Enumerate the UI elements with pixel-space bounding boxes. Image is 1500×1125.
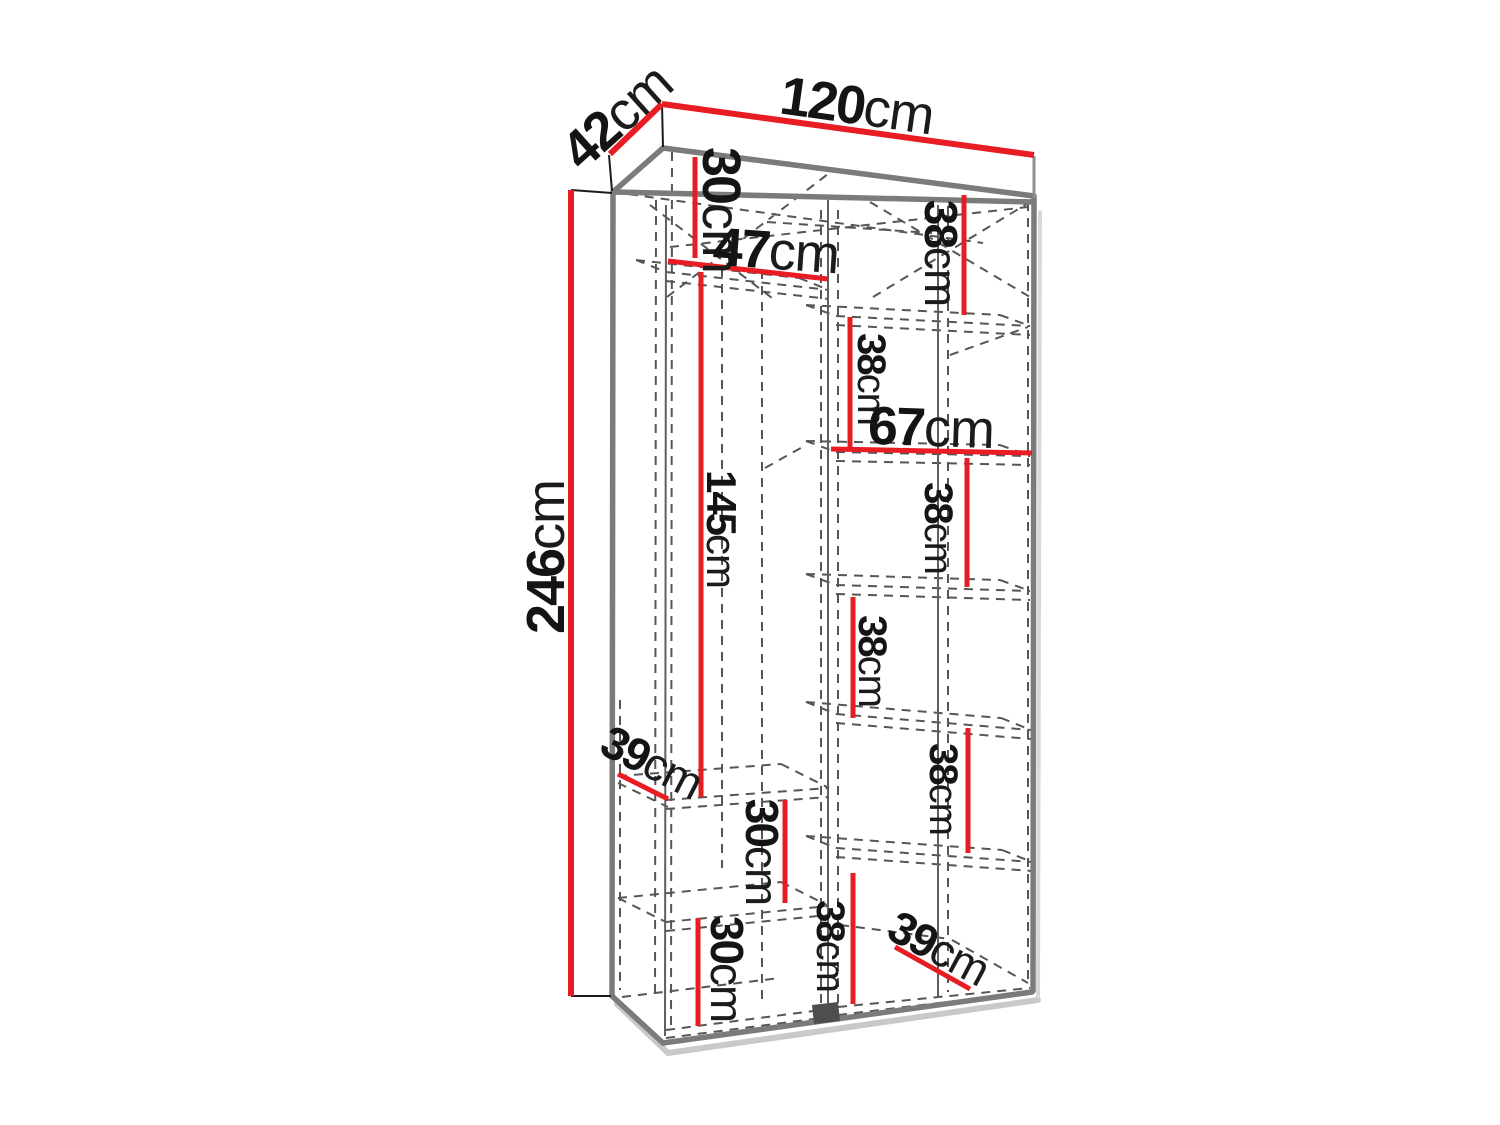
dim-unit: cm bbox=[923, 398, 995, 460]
dim-unit: cm bbox=[516, 480, 576, 550]
dim-label-right-38-c: 38cm bbox=[918, 482, 958, 574]
dim-label-right-38-e: 38cm bbox=[923, 743, 963, 835]
dim-label-left-39: 39cm bbox=[594, 717, 710, 806]
dim-value: 47 bbox=[711, 217, 771, 281]
dim-label-left-47: 47cm bbox=[711, 220, 841, 283]
dim-label-left-145: 145cm bbox=[700, 470, 742, 588]
dim-label-right-38-d: 38cm bbox=[852, 615, 892, 707]
dim-unit: cm bbox=[736, 846, 788, 905]
dim-value: 38 bbox=[850, 615, 894, 656]
dim-unit: cm bbox=[767, 221, 841, 286]
dim-unit: cm bbox=[698, 534, 745, 588]
dim-value: 38 bbox=[849, 333, 893, 374]
dim-unit: cm bbox=[860, 77, 938, 146]
dim-label-height-246: 246cm bbox=[519, 480, 573, 634]
dim-unit: cm bbox=[850, 656, 894, 707]
dim-value: 30 bbox=[701, 916, 753, 963]
dim-label-bottom-left-30: 30cm bbox=[704, 916, 750, 1023]
dim-value: 145 bbox=[698, 470, 745, 534]
dim-value: 38 bbox=[915, 200, 967, 247]
dim-unit: cm bbox=[916, 523, 960, 574]
dim-label-bottom-38: 38cm bbox=[810, 900, 850, 992]
dim-value: 120 bbox=[777, 66, 869, 137]
dim-label-width-120: 120cm bbox=[777, 69, 937, 144]
dim-label-depth-42: 42cm bbox=[552, 55, 682, 179]
wardrobe-dimension-diagram: 42cm120cm30cm47cm38cm38cm67cm145cm38cm38… bbox=[0, 0, 1500, 1125]
dim-unit: cm bbox=[701, 963, 753, 1022]
dim-label-left-mid-30: 30cm bbox=[739, 799, 785, 906]
dim-unit: cm bbox=[915, 247, 967, 306]
dim-label-bottom-right-39: 39cm bbox=[881, 903, 997, 994]
dimension-labels: 42cm120cm30cm47cm38cm38cm67cm145cm38cm38… bbox=[0, 0, 1500, 1125]
dim-unit: cm bbox=[808, 941, 852, 992]
dim-value: 30 bbox=[691, 147, 751, 203]
dim-value: 30 bbox=[736, 799, 788, 846]
dim-value: 246 bbox=[516, 550, 576, 634]
dim-label-right-67: 67cm bbox=[867, 399, 995, 457]
dim-label-right-top-38: 38cm bbox=[918, 200, 964, 307]
dim-value: 38 bbox=[808, 900, 852, 941]
dim-value: 38 bbox=[916, 482, 960, 523]
dim-unit: cm bbox=[921, 784, 965, 835]
dim-value: 67 bbox=[867, 396, 925, 458]
dim-value: 38 bbox=[921, 743, 965, 784]
